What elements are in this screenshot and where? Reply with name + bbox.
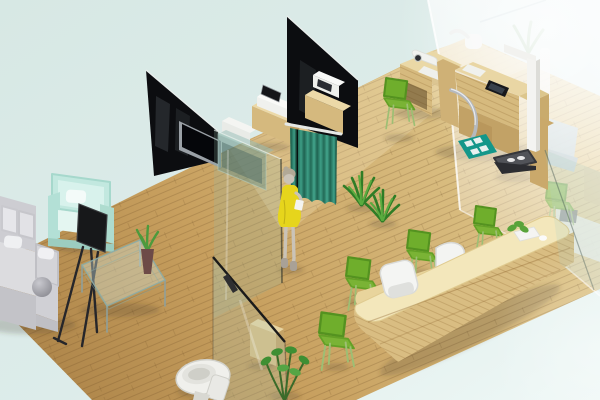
- hair-bun: [283, 166, 288, 171]
- scale-pole: [527, 58, 536, 152]
- armchair-pillow: [66, 189, 87, 203]
- person-head: [284, 174, 295, 184]
- person-leg: [293, 226, 294, 267]
- sofa-back-cushion: [2, 206, 17, 234]
- person-boot: [290, 261, 297, 271]
- render-canvas: [0, 0, 600, 400]
- interior-render-image: [0, 0, 600, 400]
- foot-pad: [517, 156, 525, 160]
- sofa-pillow: [3, 235, 22, 249]
- sofa-back-cushion: [19, 211, 34, 239]
- scale-pole-side: [536, 59, 540, 152]
- mouse: [539, 235, 547, 241]
- wall-reflection: [155, 96, 170, 152]
- foot-pad: [507, 158, 515, 162]
- round-ottoman: [32, 277, 52, 297]
- person-boot: [281, 258, 288, 268]
- camera-lens: [415, 55, 422, 62]
